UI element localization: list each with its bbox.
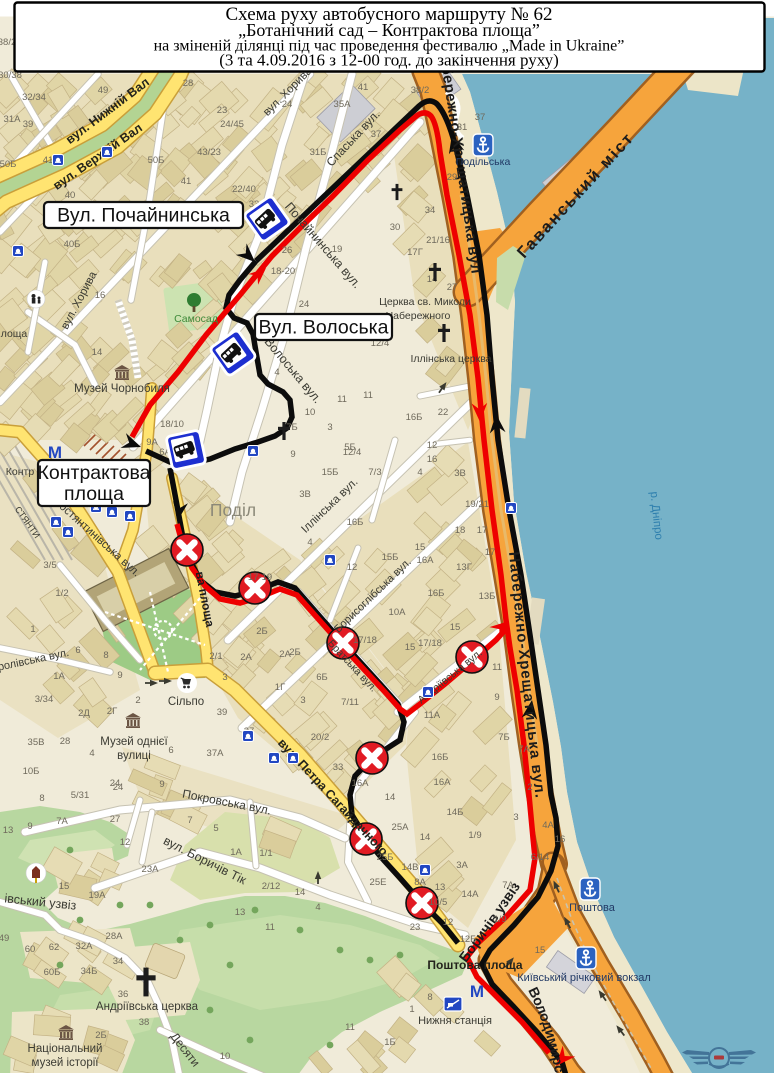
svg-text:3: 3: [513, 812, 518, 823]
svg-text:7Б: 7Б: [498, 732, 510, 743]
svg-text:38: 38: [139, 1017, 150, 1028]
svg-text:23: 23: [217, 105, 228, 116]
svg-text:Поштова: Поштова: [569, 902, 616, 914]
svg-text:вулиці: вулиці: [117, 750, 151, 762]
svg-text:22: 22: [438, 407, 449, 418]
svg-text:1А: 1А: [53, 671, 65, 682]
svg-text:40Б: 40Б: [64, 239, 81, 250]
svg-text:49: 49: [98, 85, 109, 96]
svg-text:11: 11: [265, 922, 275, 933]
svg-text:5: 5: [213, 823, 218, 834]
svg-text:6: 6: [75, 645, 80, 656]
svg-text:лоща: лоща: [1, 328, 28, 340]
svg-text:37А: 37А: [207, 748, 225, 759]
svg-text:9: 9: [290, 449, 295, 460]
svg-text:музей історії: музей історії: [32, 1057, 100, 1069]
svg-text:16Б: 16Б: [428, 588, 445, 599]
svg-text:6: 6: [168, 745, 173, 756]
svg-text:Національний: Національний: [28, 1043, 103, 1055]
svg-text:17-19: 17-19: [248, 572, 272, 583]
svg-text:16: 16: [427, 454, 438, 465]
svg-text:13Б: 13Б: [479, 591, 496, 602]
svg-text:16: 16: [555, 834, 566, 845]
svg-text:18: 18: [455, 525, 466, 536]
svg-text:площа: площа: [64, 483, 124, 505]
svg-text:21/16: 21/16: [426, 235, 450, 246]
svg-text:15: 15: [450, 622, 461, 633]
svg-text:17/18: 17/18: [353, 635, 377, 646]
svg-text:1: 1: [30, 624, 35, 635]
svg-text:32А: 32А: [76, 941, 94, 952]
svg-text:10/5: 10/5: [429, 897, 448, 908]
svg-text:3А: 3А: [456, 860, 468, 871]
svg-text:19: 19: [332, 244, 343, 255]
svg-text:Вул. Почайнинська: Вул. Почайнинська: [57, 205, 230, 227]
svg-text:23: 23: [410, 922, 421, 933]
svg-text:39: 39: [217, 707, 228, 718]
svg-text:37: 37: [371, 129, 382, 140]
svg-text:34Б: 34Б: [81, 966, 98, 977]
svg-text:7/11: 7/11: [341, 697, 359, 708]
svg-text:Сільпо: Сільпо: [168, 696, 204, 708]
svg-text:24/45: 24/45: [220, 119, 244, 130]
svg-text:14А: 14А: [462, 889, 480, 900]
svg-text:1/9: 1/9: [493, 914, 506, 925]
svg-text:8: 8: [39, 793, 44, 804]
svg-text:1А: 1А: [230, 847, 242, 858]
svg-text:35В: 35В: [28, 737, 45, 748]
svg-text:Іллінська церква: Іллінська церква: [410, 353, 491, 365]
svg-text:2Б: 2Б: [256, 626, 268, 637]
svg-text:7: 7: [187, 815, 192, 826]
svg-text:2Б: 2Б: [95, 1030, 107, 1041]
svg-text:Андріївська церква: Андріївська церква: [96, 1001, 199, 1013]
svg-text:16: 16: [95, 290, 106, 301]
svg-text:50Б: 50Б: [0, 159, 16, 170]
svg-text:10А: 10А: [389, 607, 407, 618]
svg-text:41: 41: [358, 82, 369, 93]
svg-text:2А: 2А: [240, 652, 252, 663]
svg-text:14: 14: [92, 347, 103, 358]
svg-text:18-20: 18-20: [271, 266, 295, 277]
svg-text:Нижня станція: Нижня станція: [418, 1015, 492, 1027]
svg-text:14: 14: [295, 887, 306, 898]
svg-text:12Б: 12Б: [460, 934, 477, 945]
svg-text:12: 12: [427, 440, 438, 451]
svg-text:37: 37: [475, 112, 486, 123]
svg-text:4: 4: [274, 367, 279, 378]
svg-text:10Б: 10Б: [23, 766, 40, 777]
svg-text:22/40: 22/40: [232, 184, 256, 195]
svg-text:7А: 7А: [518, 744, 530, 755]
svg-text:4А: 4А: [542, 820, 554, 831]
svg-text:18/10: 18/10: [160, 419, 184, 430]
svg-text:24: 24: [282, 99, 293, 110]
svg-text:19/21: 19/21: [465, 499, 489, 510]
svg-text:13Г: 13Г: [456, 562, 472, 573]
svg-text:27: 27: [110, 814, 121, 825]
svg-text:27: 27: [447, 282, 458, 293]
svg-text:Музей однієї: Музей однієї: [100, 736, 168, 748]
svg-text:4: 4: [89, 748, 94, 759]
svg-text:7/3: 7/3: [368, 467, 381, 478]
svg-text:32/34: 32/34: [22, 92, 46, 103]
svg-text:15: 15: [535, 945, 546, 956]
svg-text:13: 13: [435, 882, 446, 893]
svg-text:Набережного: Набережного: [386, 310, 451, 322]
svg-text:5Б: 5Б: [344, 442, 356, 453]
svg-text:Подільська: Подільська: [456, 156, 511, 168]
svg-text:1/9: 1/9: [468, 830, 481, 841]
svg-text:1Г: 1Г: [275, 682, 285, 693]
svg-text:28: 28: [183, 78, 194, 89]
svg-text:3/34: 3/34: [35, 694, 54, 705]
svg-text:7А: 7А: [56, 816, 68, 827]
svg-text:34: 34: [113, 956, 124, 967]
svg-text:1/2: 1/2: [55, 588, 68, 599]
svg-text:11: 11: [337, 394, 347, 405]
svg-text:15: 15: [415, 542, 426, 553]
svg-text:14: 14: [385, 792, 396, 803]
svg-text:Контрактова: Контрактова: [38, 462, 151, 484]
svg-text:23А: 23А: [142, 864, 160, 875]
svg-text:11: 11: [363, 390, 373, 401]
svg-text:2Б: 2Б: [289, 647, 301, 658]
svg-text:11: 11: [345, 1022, 355, 1033]
svg-text:15Б: 15Б: [322, 467, 339, 478]
svg-text:35А: 35А: [334, 99, 352, 110]
svg-text:17Г: 17Г: [407, 247, 423, 258]
svg-text:2: 2: [527, 782, 532, 793]
svg-text:41: 41: [43, 155, 54, 166]
svg-text:6/14: 6/14: [531, 852, 550, 863]
svg-text:3: 3: [300, 695, 305, 706]
svg-text:Поштова площа: Поштова площа: [427, 958, 523, 972]
svg-text:Музей Чорнобиля: Музей Чорнобиля: [74, 383, 170, 395]
svg-text:49: 49: [0, 933, 9, 944]
svg-text:Самосад: Самосад: [174, 313, 218, 325]
svg-text:(3 та 4.09.2016 з 12-00 год. д: (3 та 4.09.2016 з 12-00 год. до закінчен…: [219, 51, 559, 70]
svg-text:33: 33: [333, 762, 344, 773]
svg-text:34: 34: [425, 205, 436, 216]
svg-text:29: 29: [447, 172, 458, 183]
svg-text:13: 13: [235, 907, 246, 918]
svg-text:М: М: [470, 982, 484, 1001]
svg-text:11: 11: [492, 662, 502, 673]
svg-text:9: 9: [159, 779, 164, 790]
svg-text:Поділ: Поділ: [210, 500, 256, 520]
svg-text:2А: 2А: [279, 649, 291, 660]
svg-text:31: 31: [457, 122, 468, 133]
svg-text:16А: 16А: [352, 778, 370, 789]
svg-text:60: 60: [25, 944, 36, 955]
svg-text:39: 39: [23, 119, 34, 130]
svg-text:4: 4: [315, 902, 320, 913]
svg-text:5/31: 5/31: [71, 790, 90, 801]
svg-text:8: 8: [427, 992, 432, 1003]
svg-text:12: 12: [347, 562, 358, 573]
svg-text:24: 24: [299, 299, 310, 310]
svg-text:10: 10: [220, 1051, 231, 1062]
svg-text:25Е: 25Е: [370, 877, 387, 888]
svg-text:16А: 16А: [434, 777, 452, 788]
svg-text:24: 24: [113, 782, 124, 793]
svg-text:17/18: 17/18: [418, 638, 442, 649]
svg-text:9: 9: [494, 692, 499, 703]
svg-text:20/2: 20/2: [311, 732, 330, 743]
svg-text:28А: 28А: [106, 931, 124, 942]
svg-text:41: 41: [181, 176, 192, 187]
svg-text:4: 4: [417, 467, 422, 478]
svg-text:9А: 9А: [146, 437, 158, 448]
svg-text:15: 15: [59, 881, 70, 892]
svg-text:14: 14: [420, 832, 431, 843]
svg-text:Контр: Контр: [6, 466, 35, 478]
svg-text:4: 4: [307, 537, 312, 548]
svg-text:40: 40: [65, 190, 76, 201]
svg-text:7А: 7А: [502, 880, 514, 891]
svg-text:16А: 16А: [417, 555, 435, 566]
svg-text:10: 10: [305, 407, 316, 418]
svg-text:50Б: 50Б: [148, 155, 165, 166]
svg-text:31Б: 31Б: [310, 147, 327, 158]
svg-text:1: 1: [409, 1004, 414, 1015]
svg-text:11А: 11А: [424, 710, 441, 721]
svg-text:2: 2: [135, 695, 140, 706]
svg-text:3В: 3В: [454, 468, 466, 479]
svg-text:17: 17: [485, 547, 496, 558]
svg-text:26: 26: [282, 245, 293, 256]
svg-text:19А: 19А: [89, 890, 107, 901]
svg-text:15: 15: [405, 642, 416, 653]
svg-text:43/23: 43/23: [197, 147, 221, 158]
svg-text:Київський річковий вокзал: Київський річковий вокзал: [517, 972, 651, 984]
svg-text:2Г: 2Г: [107, 706, 117, 717]
svg-text:3: 3: [327, 422, 332, 433]
svg-text:60Б: 60Б: [44, 967, 61, 978]
svg-text:2/1: 2/1: [209, 651, 222, 662]
svg-text:8А: 8А: [414, 877, 426, 888]
svg-text:31А: 31А: [4, 114, 22, 125]
svg-text:9: 9: [117, 670, 122, 681]
svg-text:1Б: 1Б: [384, 1037, 396, 1048]
svg-text:30: 30: [390, 222, 401, 233]
svg-text:17: 17: [477, 525, 488, 536]
svg-text:13: 13: [3, 825, 14, 836]
svg-text:25А: 25А: [392, 822, 410, 833]
svg-text:16Б: 16Б: [347, 517, 364, 528]
svg-text:9: 9: [27, 821, 32, 832]
svg-text:2Д: 2Д: [78, 708, 90, 719]
svg-text:6Б: 6Б: [316, 672, 328, 683]
svg-text:12: 12: [120, 837, 131, 848]
svg-text:3В: 3В: [299, 489, 311, 500]
svg-text:28: 28: [60, 736, 71, 747]
svg-text:14Б: 14Б: [447, 807, 464, 818]
svg-text:1/1: 1/1: [259, 848, 272, 859]
svg-text:15Б: 15Б: [382, 552, 399, 563]
svg-text:36: 36: [118, 989, 129, 1000]
svg-text:3: 3: [222, 672, 227, 683]
svg-text:25Б: 25Б: [377, 852, 394, 863]
svg-text:8: 8: [103, 650, 108, 661]
svg-text:3/5: 3/5: [43, 560, 56, 571]
svg-text:Вул. Волоська: Вул. Волоська: [259, 317, 389, 339]
svg-text:Церква св. Миколи: Церква св. Миколи: [379, 296, 471, 308]
svg-text:38/2: 38/2: [411, 85, 430, 96]
svg-text:2/12: 2/12: [262, 881, 281, 892]
svg-text:14В: 14В: [402, 862, 419, 873]
svg-text:16Б: 16Б: [432, 752, 449, 763]
svg-text:62: 62: [49, 942, 60, 953]
svg-text:12: 12: [443, 917, 454, 928]
svg-text:16Б: 16Б: [406, 412, 423, 423]
